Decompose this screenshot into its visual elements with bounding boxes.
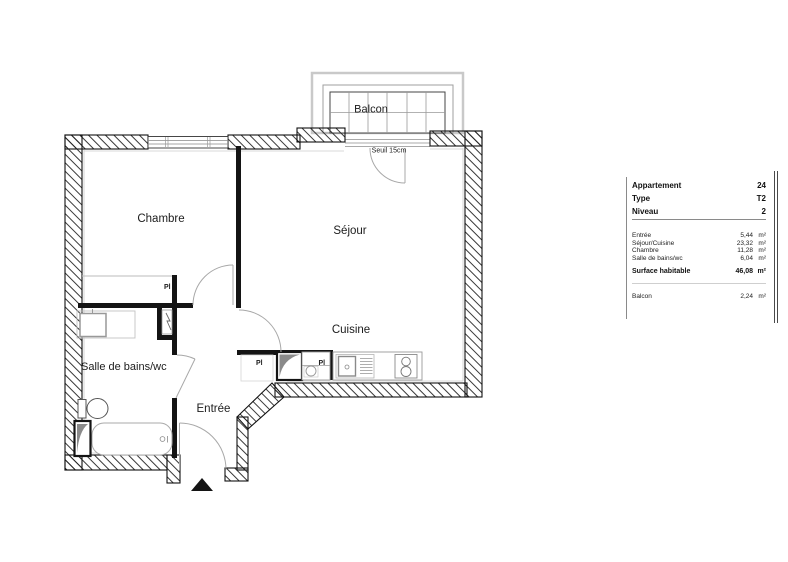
room-label-balcon: Balcon — [354, 104, 388, 116]
washbasin — [80, 314, 106, 337]
bathroom-duct — [75, 421, 91, 456]
type-row: Type T2 — [632, 192, 766, 205]
balcony-unit: m² — [753, 293, 766, 301]
apartment-number-row: Appartement 24 — [632, 179, 766, 192]
room-label-entree: Entrée — [197, 403, 231, 415]
area-label: Salle de bains/wc — [632, 255, 719, 263]
balcony-area-row: Balcon 2,24 m² — [632, 293, 766, 301]
total-unit: m² — [753, 268, 766, 275]
total-label: Surface habitable — [632, 268, 719, 275]
cooktop — [395, 355, 417, 379]
placard-label-bedroom: Pl — [164, 284, 171, 291]
separator-strong — [632, 219, 766, 220]
apartment-info-panel: Appartement 24 Type T2 Niveau 2 Entrée 5… — [626, 171, 778, 323]
area-value: 6,04 — [719, 255, 753, 263]
apartment-value: 24 — [757, 179, 766, 192]
area-label: Chambre — [632, 247, 719, 255]
area-label: Entrée — [632, 232, 719, 240]
bathtub — [92, 423, 172, 455]
area-value: 23,32 — [719, 240, 753, 248]
level-label: Niveau — [632, 205, 658, 218]
water-heater-closet — [302, 352, 330, 380]
kitchen-counter — [333, 352, 422, 380]
seuil-label: Seuil 15cm — [372, 148, 407, 155]
total-value: 46,08 — [719, 268, 753, 275]
room-label-cuisine: Cuisine — [332, 324, 370, 336]
area-row-entree: Entrée 5,44 m² — [632, 232, 766, 240]
area-row-salle-de-bains: Salle de bains/wc 6,04 m² — [632, 255, 766, 263]
type-label: Type — [632, 192, 650, 205]
level-value: 2 — [762, 205, 766, 218]
toilet — [78, 399, 108, 419]
panel-divider-left — [626, 177, 627, 319]
area-value: 5,44 — [719, 232, 753, 240]
placard-label-kitchen: Pl — [319, 360, 326, 367]
area-value: 11,28 — [719, 247, 753, 255]
bedroom-window — [148, 137, 228, 149]
kitchen-duct — [277, 352, 302, 380]
level-row: Niveau 2 — [632, 205, 766, 218]
area-unit: m² — [753, 232, 766, 240]
area-unit: m² — [753, 255, 766, 263]
separator-light — [632, 283, 766, 284]
placard-label-entry: Pl — [256, 360, 263, 367]
area-unit: m² — [753, 247, 766, 255]
balcony-value: 2,24 — [719, 293, 753, 301]
total-area-row: Surface habitable 46,08 m² — [632, 268, 766, 275]
area-row-sejour-cuisine: Séjour/Cuisine 23,32 m² — [632, 240, 766, 248]
room-label-salle-de-bains: Salle de bains/wc — [81, 361, 167, 373]
balcony-label: Balcon — [632, 293, 719, 301]
apartment-label: Appartement — [632, 179, 681, 192]
area-label: Séjour/Cuisine — [632, 240, 719, 248]
room-label-sejour: Séjour — [333, 225, 366, 237]
kitchen-sink — [339, 357, 356, 377]
type-value: T2 — [757, 192, 766, 205]
area-row-chambre: Chambre 11,28 m² — [632, 247, 766, 255]
area-unit: m² — [753, 240, 766, 248]
room-label-chambre: Chambre — [137, 213, 184, 225]
